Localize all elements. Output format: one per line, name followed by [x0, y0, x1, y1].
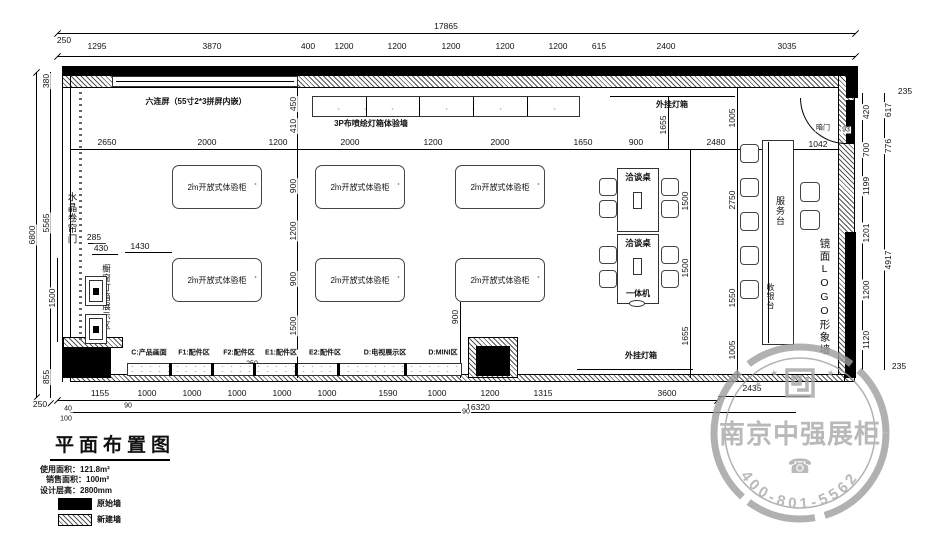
dim-line — [884, 93, 885, 370]
dim-label: 4917 — [884, 250, 893, 271]
dim-label: 410 — [289, 118, 298, 134]
dim-label: 1650 — [573, 138, 594, 147]
dim-label: 3035 — [777, 42, 798, 51]
dim-label: 855 — [42, 369, 51, 385]
stool — [800, 210, 820, 230]
service-desk — [762, 140, 794, 345]
page-title: 平面布置图 — [55, 436, 175, 457]
all-in-one-machine — [629, 300, 645, 307]
watermark-stamp: ★ ★ ★ 南京中强展柜 ☎ 400-801-5562 — [700, 337, 900, 533]
dim-label: 450 — [289, 96, 298, 112]
open-cabinet: 2m开放式体验柜 — [455, 165, 545, 209]
dim-label: 1200 — [495, 42, 516, 51]
spray-wall-divider — [366, 97, 367, 116]
strip-divider — [211, 363, 214, 376]
dim-label: 90 — [123, 403, 133, 410]
dim-label: 1590 — [378, 389, 399, 398]
chair — [740, 246, 759, 265]
showcase-knob — [93, 326, 99, 333]
dim-line — [57, 33, 856, 34]
dim-tick — [852, 53, 859, 60]
dim-label: 1500 — [289, 316, 298, 337]
lightbox-bracket — [610, 96, 735, 97]
stamp-star-icon: ★ — [769, 367, 779, 379]
strip-divider — [337, 363, 340, 376]
dim-line — [57, 258, 58, 342]
table-screen — [633, 192, 642, 209]
strip-divider — [253, 363, 256, 376]
dim-label: 1200 — [387, 42, 408, 51]
dim-line — [737, 88, 738, 378]
dim-label: 1500 — [681, 191, 690, 212]
showcase-knob — [93, 288, 99, 295]
spray-wall-label: 3P布喷绘灯箱体验墙 — [306, 120, 436, 129]
dim-label: 1201 — [862, 223, 871, 244]
strip-divider — [169, 363, 172, 376]
wall-right-corner — [846, 66, 858, 98]
cabinet-label: 2m开放式体验柜 — [470, 275, 529, 286]
zone-label: C:产品画面 — [130, 350, 167, 357]
stamp-company: 南京中强展柜 — [719, 419, 881, 449]
column-center — [476, 346, 510, 376]
service-desk-label: 服务台 — [775, 196, 784, 226]
area-sale: 销售面积：100m² — [46, 476, 109, 485]
open-cabinet: 2m开放式体验柜 — [315, 165, 405, 209]
dim-label: 1200 — [548, 42, 569, 51]
chair — [740, 212, 759, 231]
dim-line — [70, 149, 838, 150]
hidden-door-arc — [800, 98, 846, 144]
chair — [740, 178, 759, 197]
dim-label: 1000 — [227, 389, 248, 398]
dim-label: 1200 — [423, 138, 444, 147]
zone-label: D:MINI区 — [427, 350, 458, 357]
dim-label: 2000 — [197, 138, 218, 147]
crystal-door-label: 水晶卷帘门 — [66, 192, 76, 245]
chair — [599, 178, 617, 196]
chair — [740, 144, 759, 163]
dim-label: 1200 — [862, 280, 871, 301]
chair — [599, 246, 617, 264]
dim-label: 900 — [628, 138, 644, 147]
dim-label: 1199 — [862, 176, 871, 196]
dim-label: 1655 — [681, 326, 690, 347]
dim-label: 250 — [56, 36, 72, 45]
dim-label: 3870 — [202, 42, 223, 51]
open-cabinet: 2m开放式体验柜 — [315, 258, 405, 302]
dim-label: 430 — [93, 244, 109, 253]
lightbox-label-bottom: 外挂灯箱 — [611, 352, 671, 361]
zone-label: D:电视展示区 — [363, 350, 407, 357]
spray-wall-divider — [473, 97, 474, 116]
cabinet-label: 2m开放式体验柜 — [330, 275, 389, 286]
dim-label: 1295 — [87, 42, 108, 51]
dim-label: 90 — [461, 409, 471, 416]
dim-label: 1200 — [480, 389, 501, 398]
dim-label: 1000 — [182, 389, 203, 398]
stamp-star-icon: ★ — [826, 367, 836, 379]
dim-label: 250 — [32, 400, 48, 409]
dim-label: 1000 — [137, 389, 158, 398]
zone-label: E2:配件区 — [308, 350, 342, 357]
dim-label: 17865 — [433, 22, 459, 31]
lightbox-label-top: 外挂灯箱 — [642, 101, 702, 110]
dim-label: 900 — [289, 271, 298, 287]
area-use: 使用面积：121.8m² — [40, 466, 110, 475]
spray-wall-divider — [419, 97, 420, 116]
table-screen — [633, 258, 642, 275]
legend-swatch-new — [58, 514, 92, 526]
hidden-door-panel — [846, 100, 854, 144]
design-height: 设计层高：2800mm — [40, 487, 112, 496]
cabinet-label: 2m开放式体验柜 — [187, 182, 246, 193]
dim-label: 1550 — [728, 288, 737, 309]
lightbox-bracket — [577, 369, 693, 370]
dim-label: 2000 — [340, 138, 361, 147]
dim-label: 900 — [451, 309, 460, 325]
dim-label: 776 — [884, 138, 893, 154]
dim-label: 1042 — [808, 140, 829, 149]
stamp-star-icon: ★ — [752, 378, 764, 391]
hidden-door-label: 暗门 — [815, 125, 831, 132]
chair — [599, 270, 617, 288]
title-underline — [50, 459, 170, 461]
chair — [740, 280, 759, 299]
dim-label: 40 — [63, 406, 73, 413]
open-cabinet: 2m开放式体验柜 — [455, 258, 545, 302]
legend-new-label: 新建墙 — [97, 516, 121, 525]
dim-label: 1500 — [48, 288, 57, 309]
dim-label: 1500 — [681, 258, 690, 279]
dim-label: 2750 — [728, 190, 737, 211]
dim-label: 1430 — [130, 242, 151, 251]
dim-line — [125, 252, 172, 253]
chair — [599, 200, 617, 218]
chair — [661, 200, 679, 218]
dim-label: 100 — [59, 416, 73, 423]
dim-label: 3600 — [657, 389, 678, 398]
column-left — [63, 347, 111, 378]
open-cabinet: 2m开放式体验柜 — [172, 258, 262, 302]
chair — [661, 178, 679, 196]
zone-label: E1:配件区 — [264, 350, 298, 357]
spray-wall-divider — [527, 97, 528, 116]
dim-label: 1655 — [659, 115, 668, 136]
strip-divider — [404, 363, 407, 376]
dim-label: 700 — [862, 142, 871, 158]
dim-line — [57, 400, 717, 401]
phone-icon: ☎ — [788, 456, 813, 478]
dim-label: 380 — [42, 73, 51, 89]
dim-label: 420 — [862, 104, 871, 120]
zone-label: F1:配件区 — [177, 350, 211, 357]
strip-divider — [295, 363, 298, 376]
dim-line — [70, 412, 796, 413]
dim-label: 1000 — [317, 389, 338, 398]
dim-label: 1005 — [728, 108, 737, 129]
dim-label: 2000 — [490, 138, 511, 147]
dim-label: 2480 — [706, 138, 727, 147]
dim-line — [57, 56, 856, 57]
dim-label: 1000 — [427, 389, 448, 398]
dim-label: 1315 — [533, 389, 554, 398]
legend-original-label: 原始墙 — [97, 500, 121, 509]
dim-label: 615 — [591, 42, 607, 51]
dim-label: 235 — [897, 87, 913, 96]
floor-plan-canvas: 17865 250 1295 3870 400 1200 1200 1200 1… — [0, 0, 930, 536]
dim-label: 617 — [884, 102, 893, 118]
cashier-label: 收银台 — [766, 283, 774, 310]
dim-tick — [852, 30, 859, 37]
crystal-roller-door — [79, 92, 82, 342]
dim-label: 1200 — [289, 221, 298, 242]
cabinet-label: 2m开放式体验柜 — [470, 182, 529, 193]
stamp-logo — [787, 370, 813, 396]
cabinet-label: 2m开放式体验柜 — [187, 275, 246, 286]
dim-label: 900 — [289, 178, 298, 194]
all-in-one-label: 一体机 — [617, 290, 659, 299]
dim-line — [690, 149, 691, 378]
stool — [800, 182, 820, 202]
dim-label: 2650 — [97, 138, 118, 147]
dim-line — [92, 254, 118, 255]
cabinet-label: 2m开放式体验柜 — [330, 182, 389, 193]
service-desk-inner-line — [768, 142, 769, 343]
wall-top — [62, 66, 858, 75]
dim-label: 1200 — [268, 138, 289, 147]
legend-swatch-original — [58, 498, 92, 510]
dim-label: 2400 — [656, 42, 677, 51]
spray-lightbox-wall — [312, 96, 580, 117]
dim-label: 285 — [86, 233, 102, 242]
dim-label: 1200 — [334, 42, 355, 51]
dim-label: 1000 — [272, 389, 293, 398]
dim-label: 1200 — [441, 42, 462, 51]
chair — [661, 246, 679, 264]
meeting-table-label: 洽谈桌 — [618, 173, 658, 182]
wall-left — [62, 66, 63, 382]
meeting-table-label: 洽谈桌 — [618, 239, 658, 248]
dim-label: 5565 — [42, 213, 51, 234]
dim-label: 1155 — [90, 389, 110, 398]
dim-label: 6800 — [28, 225, 37, 246]
six-screen-inner-line — [116, 81, 294, 82]
six-screen-label: 六连屏（55寸2*3拼屏内嵌） — [126, 98, 266, 107]
chair — [661, 270, 679, 288]
open-cabinet: 2m开放式体验柜 — [172, 165, 262, 209]
dim-line — [50, 72, 51, 398]
zone-label: F2:配件区 — [222, 350, 256, 357]
dim-label: 400 — [300, 42, 316, 51]
